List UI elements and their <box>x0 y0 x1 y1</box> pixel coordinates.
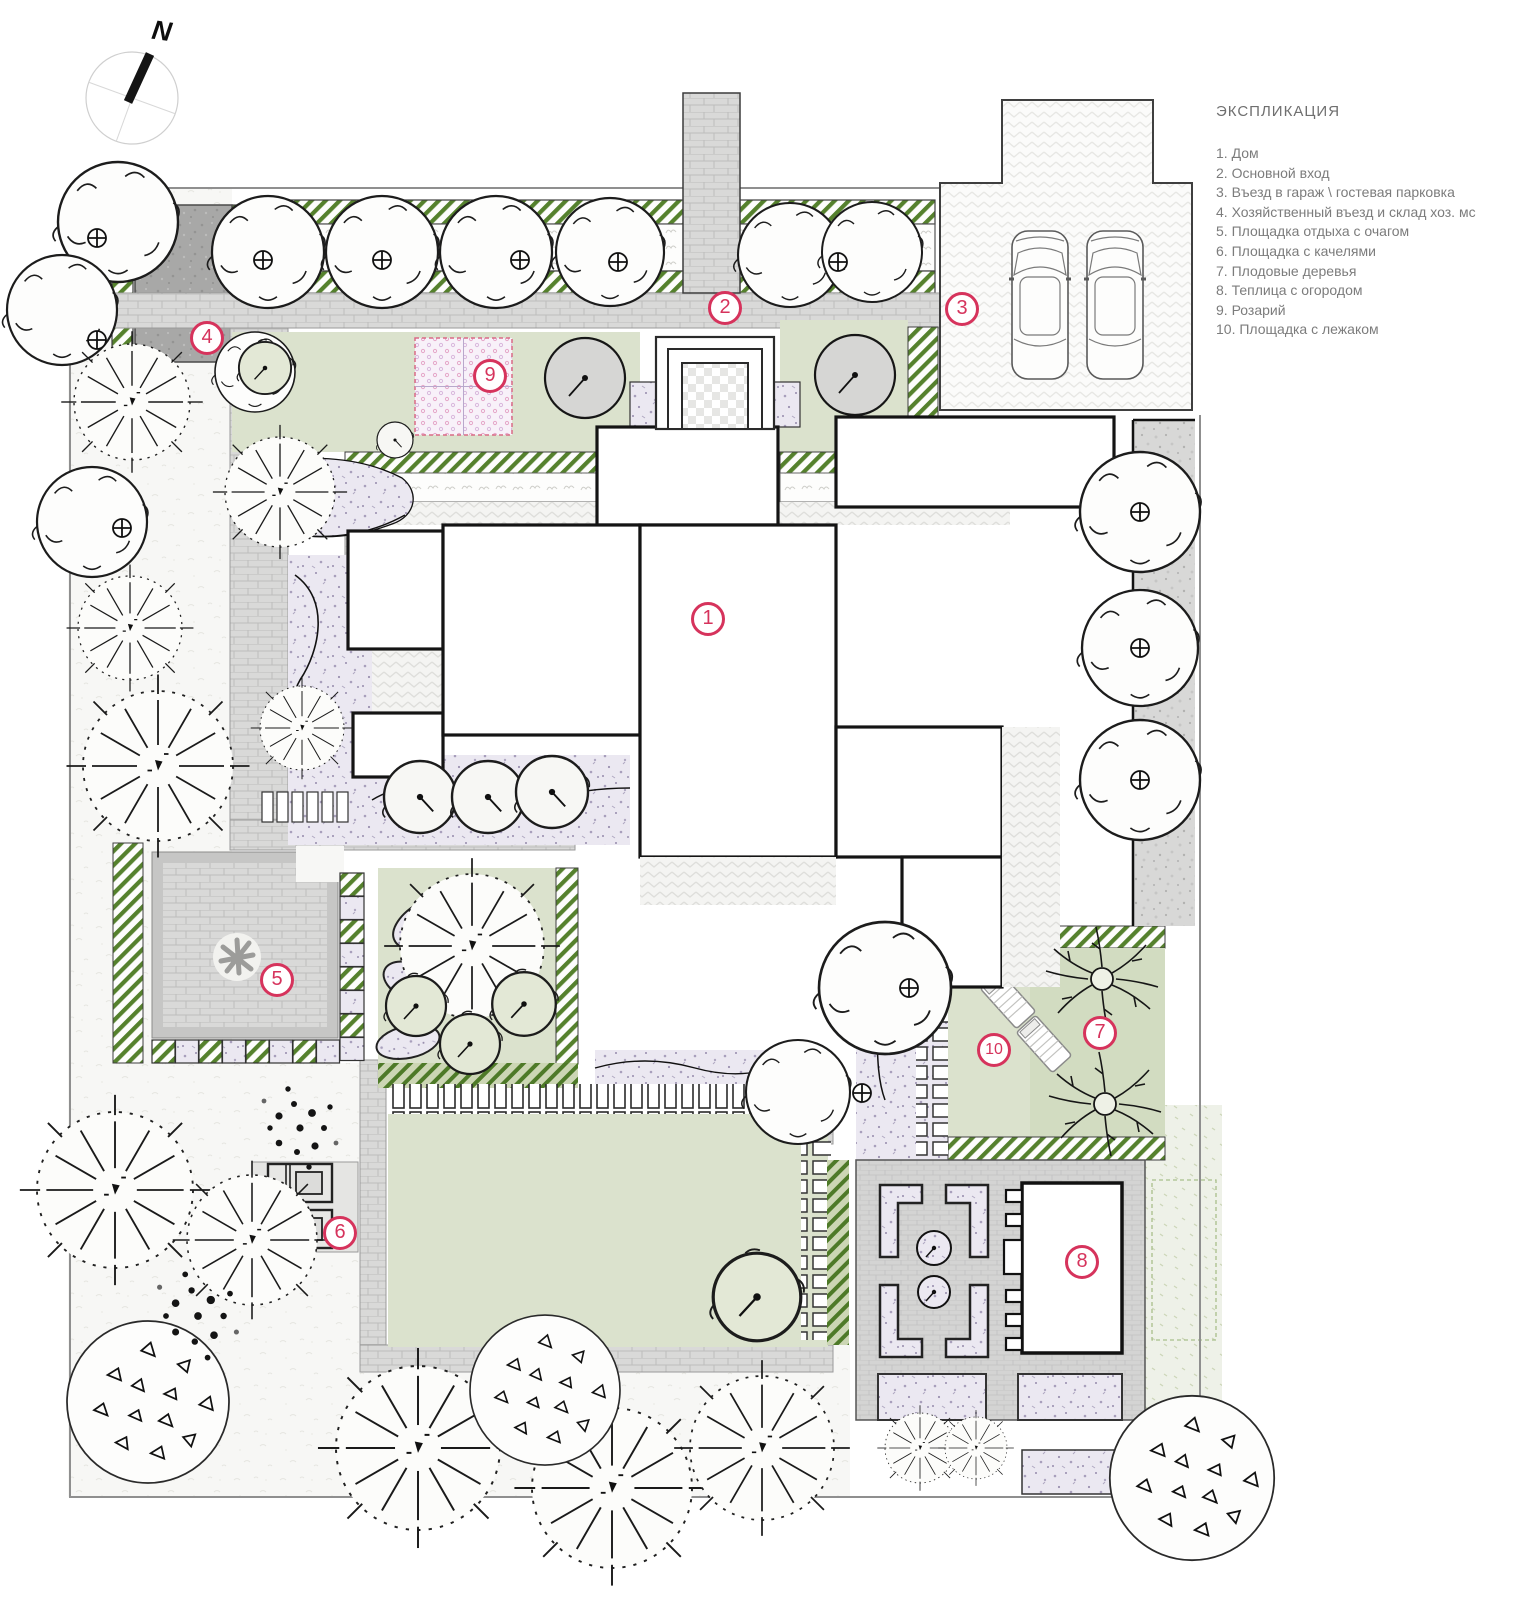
plan-marker-8: 8 <box>1065 1245 1099 1279</box>
round-shrub-icon <box>451 761 526 833</box>
legend-title: ЭКСПЛИКАЦИЯ <box>1216 103 1526 120</box>
pergola <box>390 1084 802 1114</box>
guest-parking-area <box>940 100 1192 410</box>
legend-item: 6. Площадка с качелями <box>1216 242 1526 262</box>
north-needle <box>128 54 150 102</box>
legend-item: 10. Площадка с лежаком <box>1216 320 1526 340</box>
car-icon <box>1009 231 1071 379</box>
plan-marker-10: 10 <box>977 1033 1011 1067</box>
legend-item: 1. Дом <box>1216 144 1526 164</box>
triangle-leaf-tree-icon <box>1110 1396 1274 1560</box>
conifer-tree-icon <box>61 331 203 473</box>
deciduous-tree-icon <box>814 922 953 1054</box>
legend-item: 7. Плодовые деревья <box>1216 262 1526 282</box>
conifer-tree-icon <box>674 1360 850 1536</box>
plan-marker-4: 4 <box>190 321 224 355</box>
main-entrance-walkway <box>683 93 740 293</box>
round-shrub-icon <box>383 761 458 833</box>
plan-marker-2: 2 <box>708 291 742 325</box>
terrace-right <box>1002 727 1060 987</box>
conifer-tree-icon <box>251 677 353 779</box>
plan-marker-6: 6 <box>323 1216 357 1250</box>
north-label: N <box>150 15 174 48</box>
legend-item: 2. Основной вход <box>1216 164 1526 184</box>
round-shrub-icon <box>515 756 590 828</box>
round-shrub-icon <box>376 422 413 458</box>
conifer-tree-icon <box>20 1095 210 1285</box>
plan-marker-9: 9 <box>473 359 507 393</box>
legend-item: 9. Розарий <box>1216 301 1526 321</box>
legend-item: 4. Хозяйственный въезд и склад хоз. мс <box>1216 203 1526 223</box>
plan-marker-5: 5 <box>260 963 294 997</box>
legend-item: 8. Теплица с огородом <box>1216 281 1526 301</box>
triangle-leaf-tree-icon <box>470 1315 620 1465</box>
north-compass <box>73 39 191 157</box>
stepping-stone-path <box>801 1140 831 1340</box>
conifer-tree-icon <box>67 565 194 692</box>
plan-marker-7: 7 <box>1083 1016 1117 1050</box>
legend-list: 1. Дом 2. Основной вход 3. Въезд в гараж… <box>1216 144 1526 340</box>
plan-marker-3: 3 <box>945 292 979 326</box>
terrace-bottom <box>640 857 836 905</box>
landscape-plan-canvas: 1 2 3 4 5 6 7 8 9 10 N ЭКСПЛИКАЦИЯ 1. До… <box>0 0 1536 1599</box>
triangle-leaf-tree-icon <box>67 1321 229 1483</box>
main-entrance-gate <box>656 337 774 429</box>
conifer-tree-icon <box>173 1161 332 1320</box>
conifer-tree-icon <box>938 1410 1014 1486</box>
plan-marker-1: 1 <box>691 602 725 636</box>
conifer-tree-icon <box>67 675 250 858</box>
legend-item: 5. Площадка отдыха с очагом <box>1216 222 1526 242</box>
legend: ЭКСПЛИКАЦИЯ 1. Дом 2. Основной вход 3. В… <box>1216 103 1526 340</box>
deciduous-tree-icon <box>33 467 148 577</box>
legend-item: 3. Въезд в гараж \ гостевая парковка <box>1216 183 1526 203</box>
car-icon <box>1084 231 1146 379</box>
fire-pit-icon <box>213 933 261 981</box>
conifer-tree-icon <box>213 425 347 559</box>
